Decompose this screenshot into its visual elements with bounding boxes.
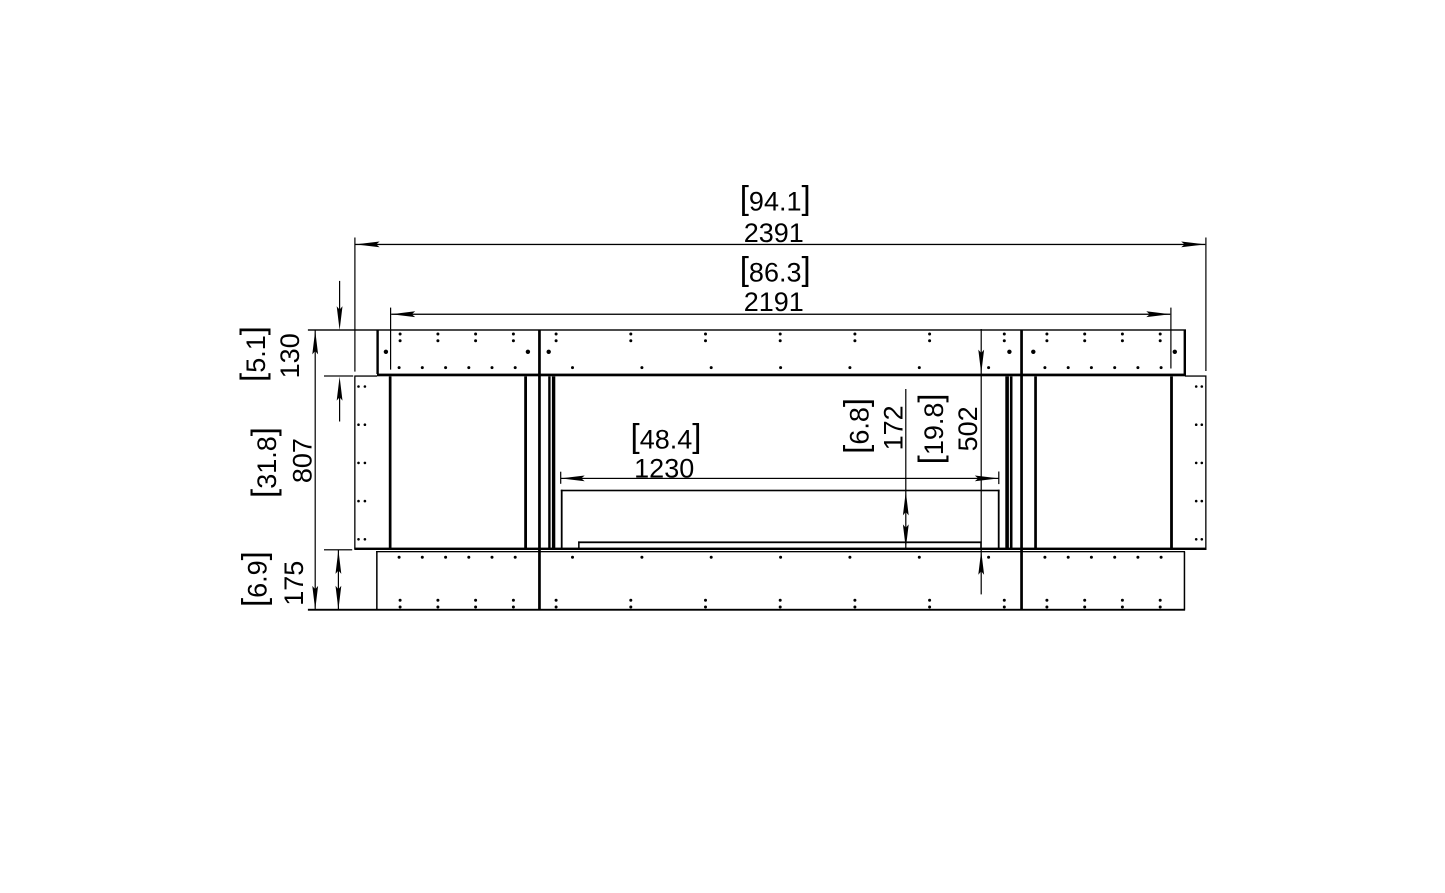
svg-text:1230: 1230 [634, 453, 694, 483]
svg-text:2391: 2391 [744, 218, 804, 248]
svg-text:130: 130 [275, 333, 305, 378]
svg-text:172: 172 [878, 405, 908, 450]
svg-text:807: 807 [287, 438, 317, 483]
svg-text:502: 502 [953, 406, 983, 451]
svg-text:2191: 2191 [744, 287, 804, 317]
svg-text:175: 175 [279, 561, 309, 606]
